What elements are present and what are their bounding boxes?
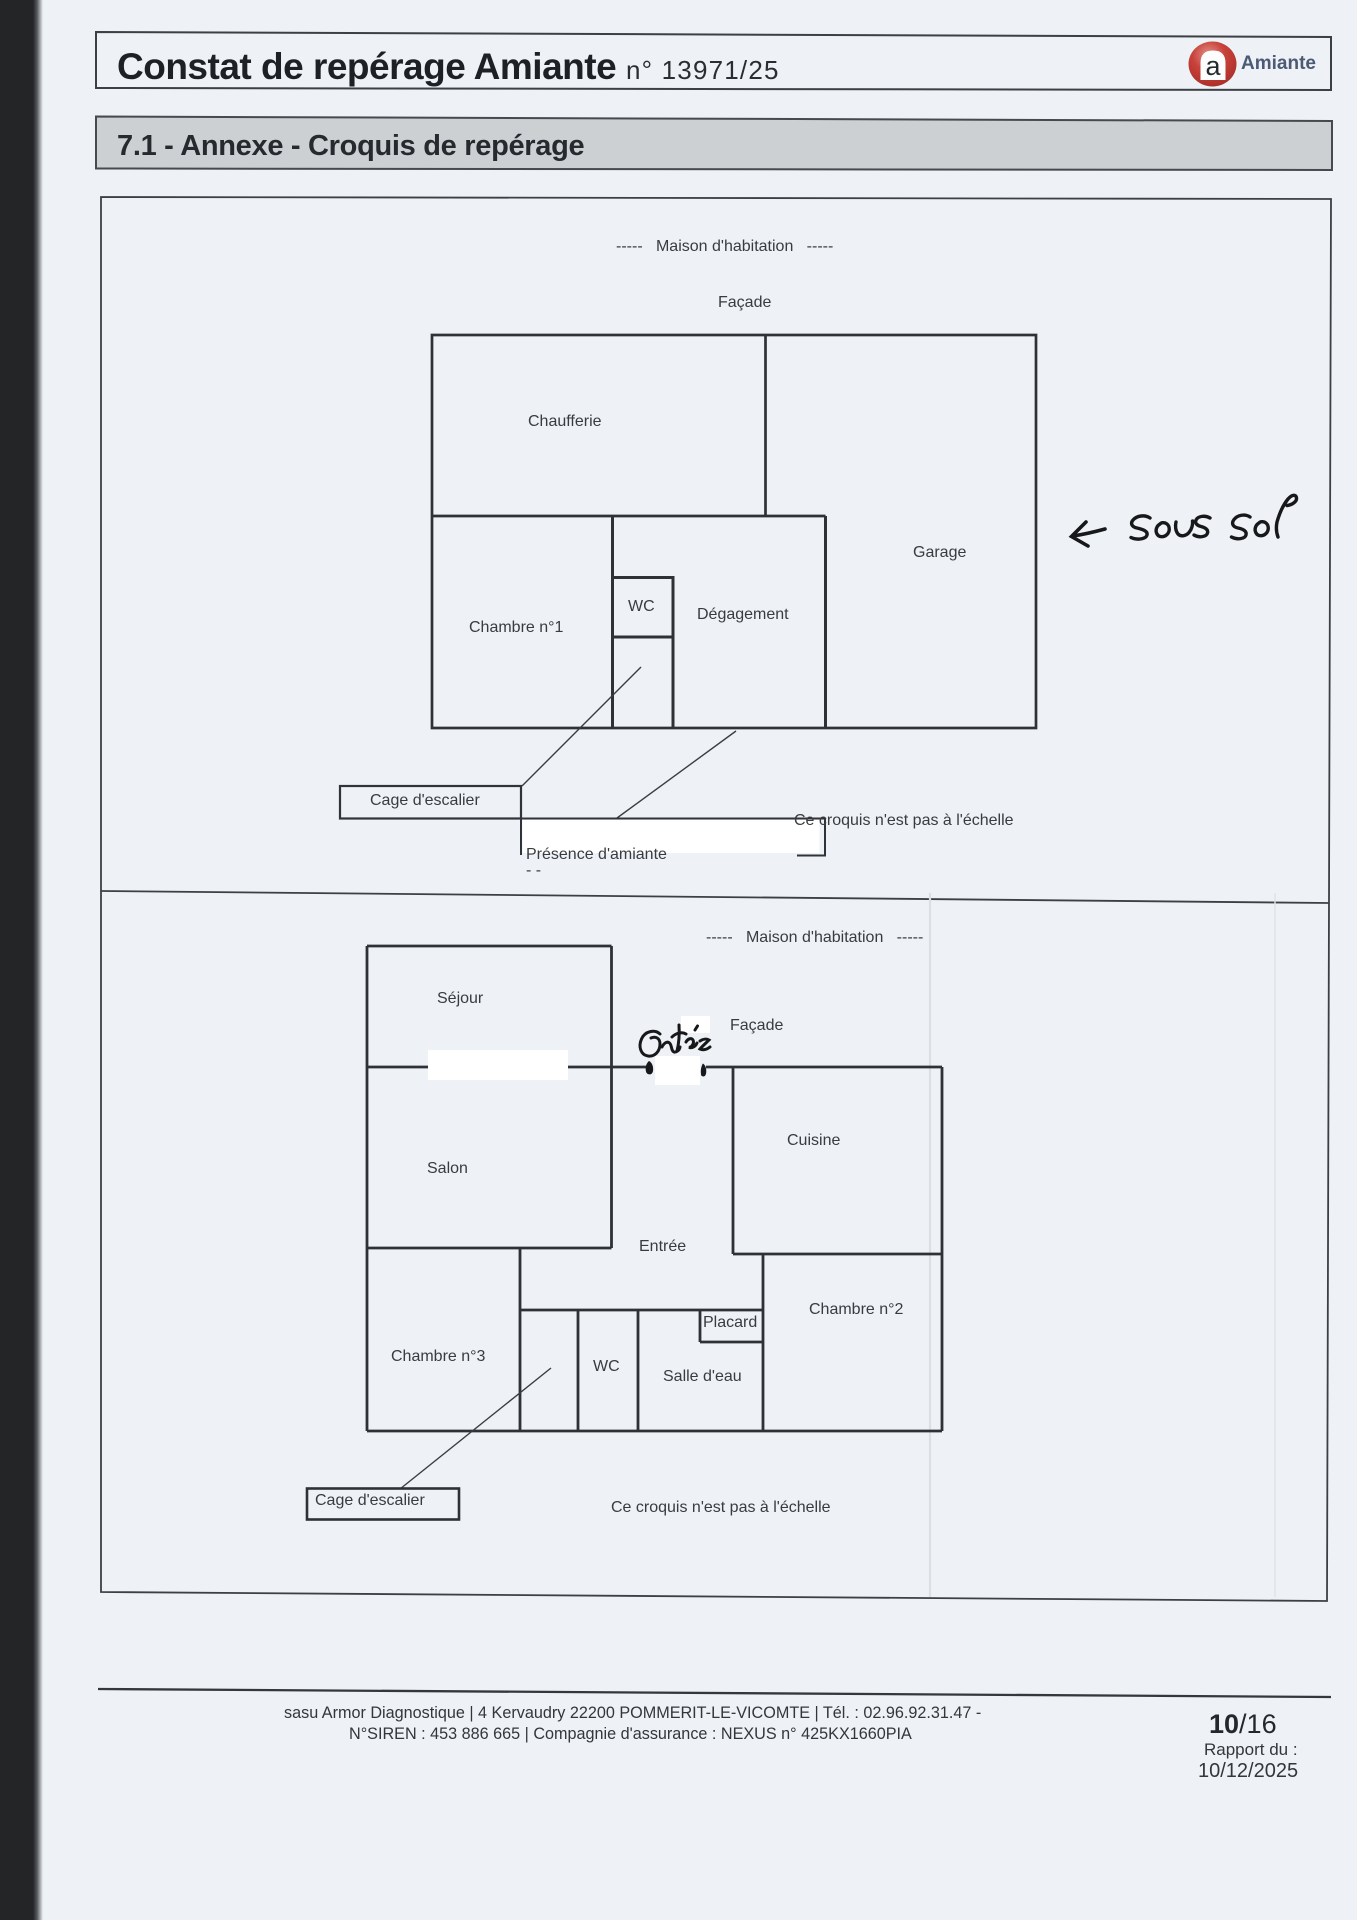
- svg-text:a: a: [1205, 51, 1221, 81]
